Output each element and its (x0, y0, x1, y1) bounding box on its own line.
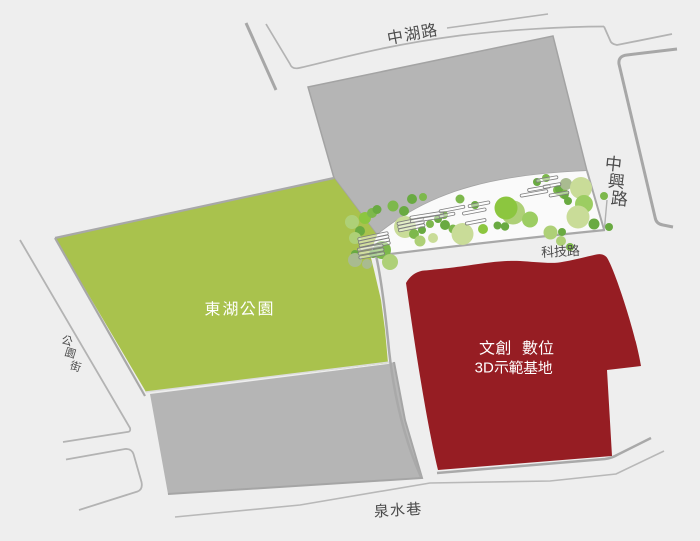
svg-text:3D: 3D (475, 360, 494, 377)
